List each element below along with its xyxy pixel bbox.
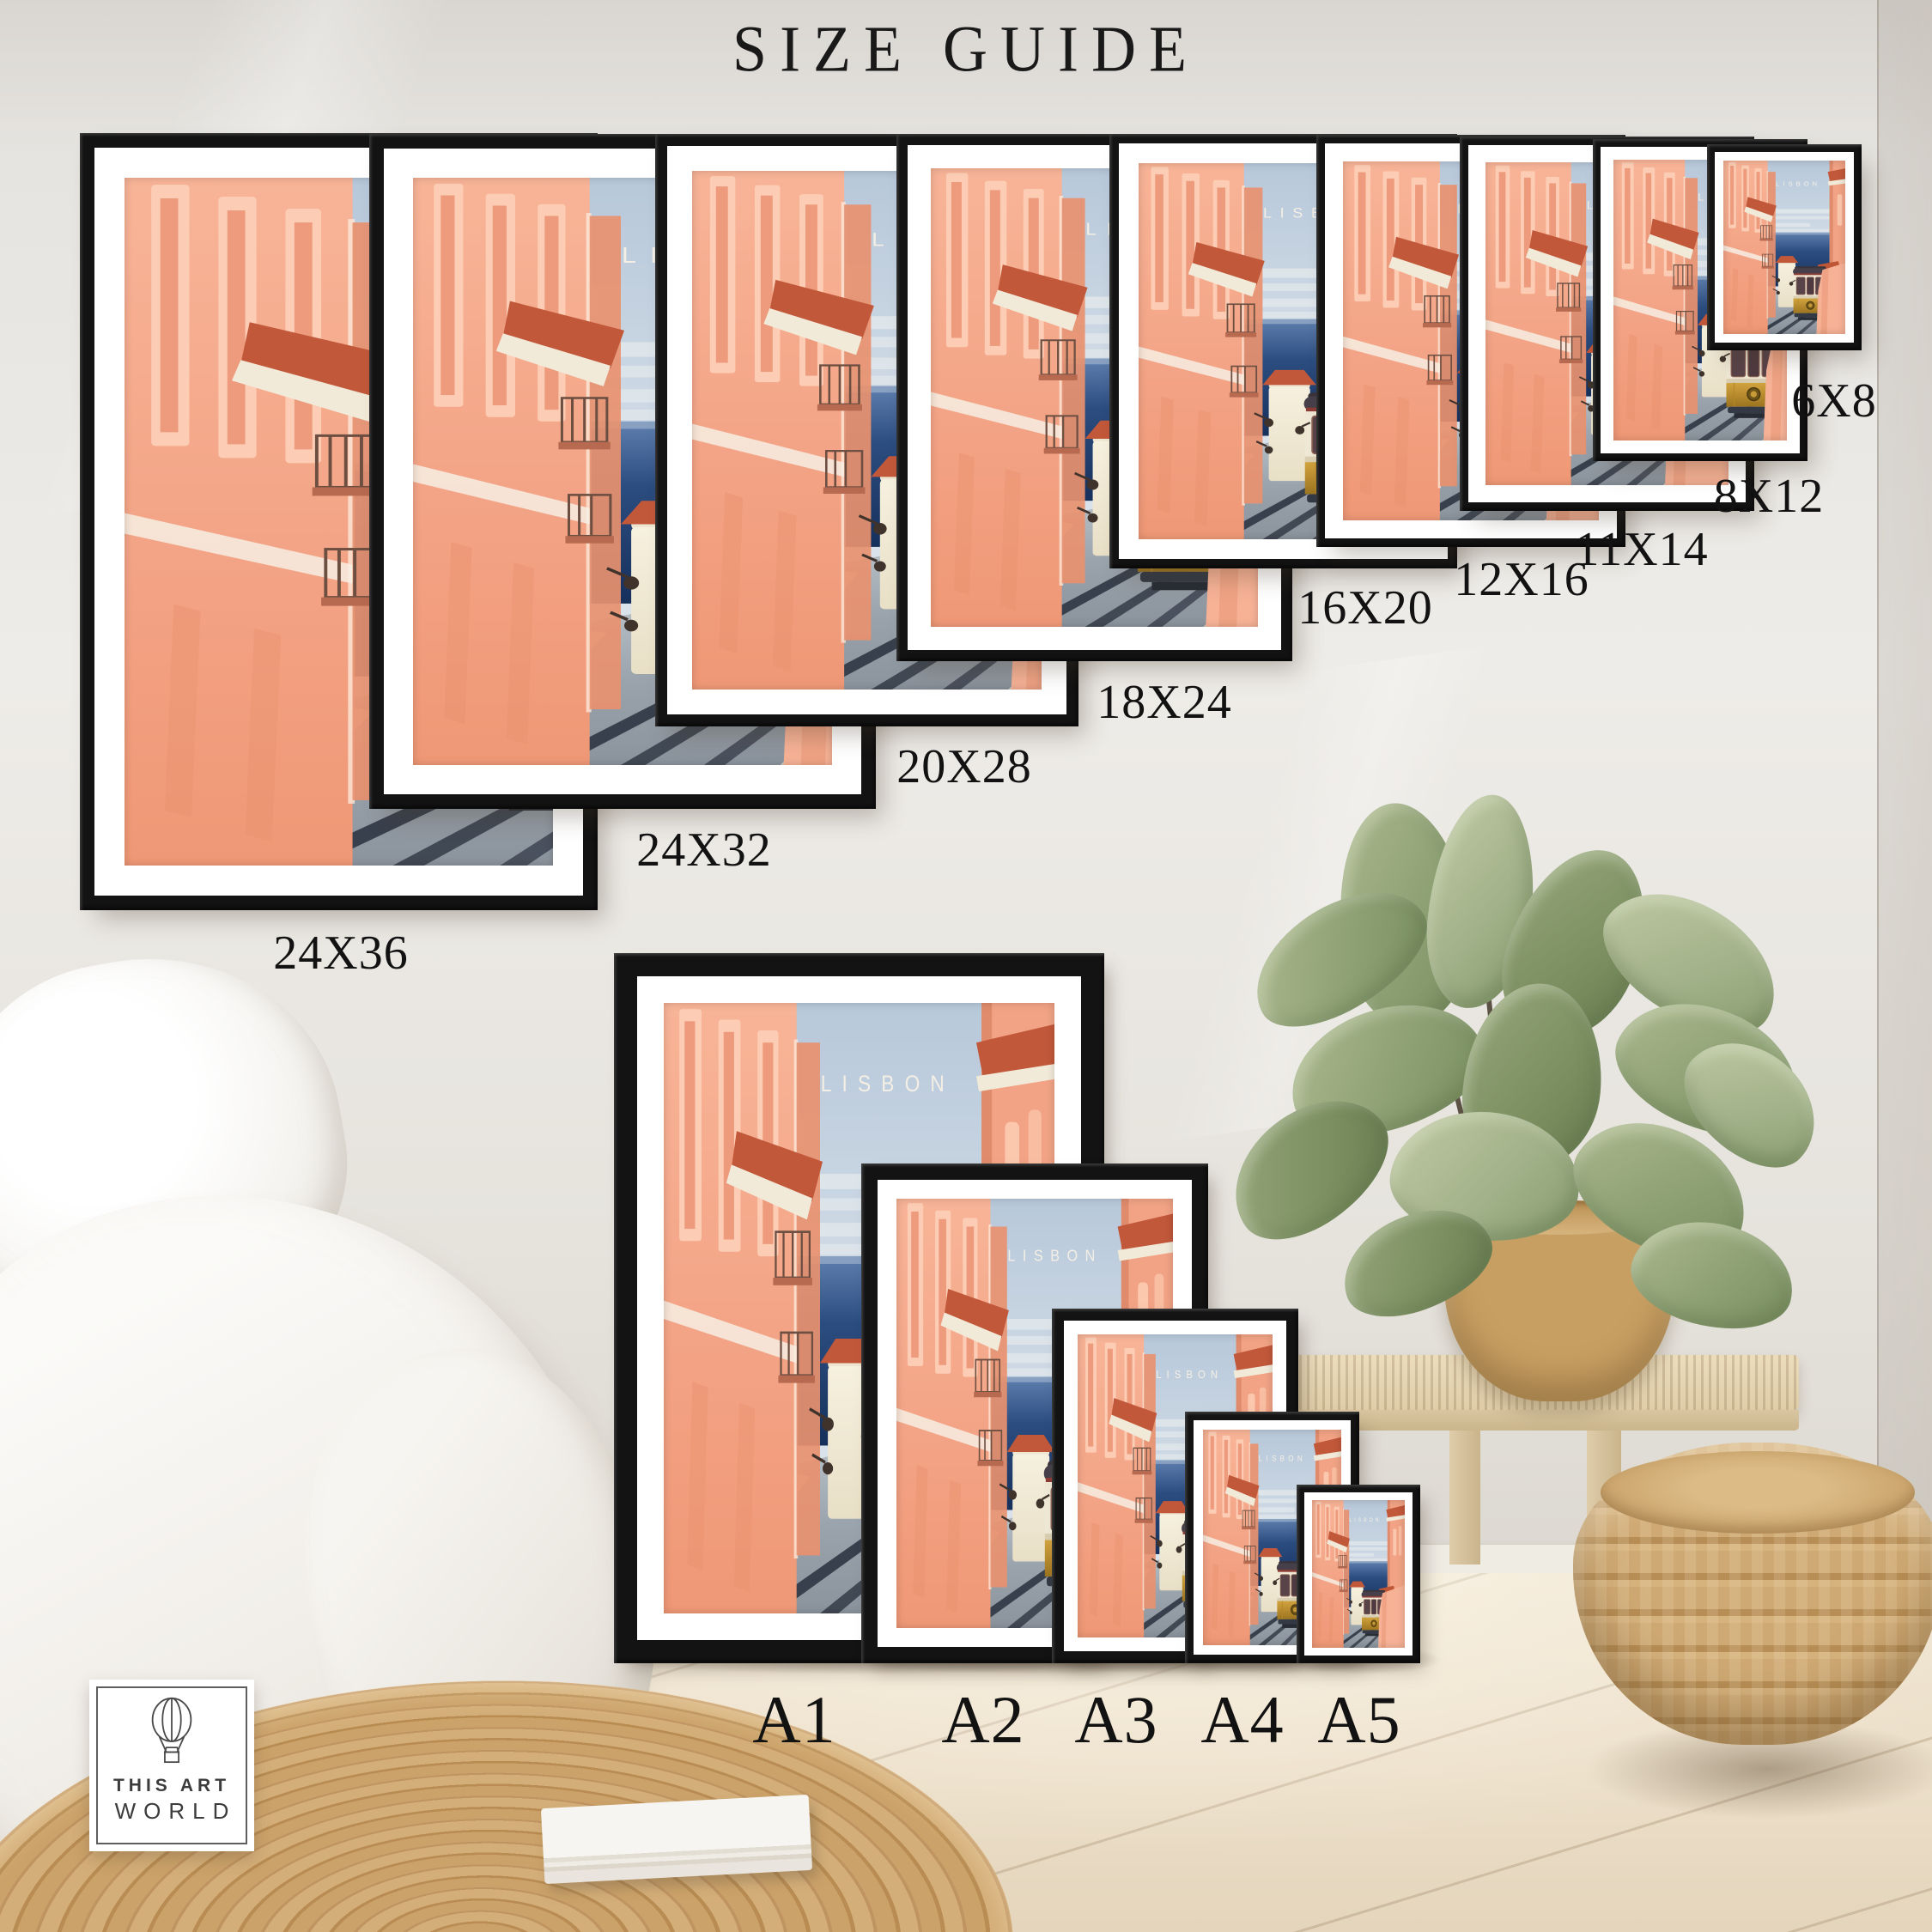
wall-corner-line (1877, 0, 1932, 1589)
size-label-6x8: 6X8 (1791, 374, 1876, 428)
size-label-a3: A3 (1074, 1681, 1157, 1759)
size-label-a2: A2 (941, 1681, 1024, 1759)
brand-logo-border: THIS ART WORLD (96, 1686, 247, 1844)
size-label-11x14: 11X14 (1575, 522, 1708, 577)
brand-logo: THIS ART WORLD (89, 1680, 254, 1851)
size-label-16x20: 16X20 (1297, 580, 1432, 635)
bench-leg (1449, 1431, 1480, 1564)
floor-frame-a5 (1297, 1485, 1420, 1663)
size-label-a1: A1 (752, 1681, 835, 1759)
size-label-8x12: 8X12 (1714, 469, 1824, 524)
bench-edge (1284, 1410, 1799, 1431)
size-label-20x28: 20X28 (896, 739, 1031, 794)
size-label-a5: A5 (1317, 1681, 1400, 1759)
jute-pouf-top (1601, 1451, 1915, 1534)
size-guide-image: SIZE GUIDE 24X3624X3220X2818X2416X2012X1… (0, 0, 1932, 1932)
wall-frame-6x8 (1707, 144, 1862, 350)
page-title: SIZE GUIDE (0, 12, 1932, 88)
size-label-18x24: 18X24 (1097, 675, 1231, 730)
size-label-a4: A4 (1200, 1681, 1284, 1759)
logo-text-line1: THIS ART (113, 1776, 230, 1796)
size-label-12x16: 12X16 (1454, 552, 1589, 607)
size-label-24x36: 24X36 (273, 926, 408, 981)
hot-air-balloon-icon (144, 1697, 199, 1771)
logo-text-line2: WORLD (115, 1798, 237, 1825)
poster-artwork (1312, 1500, 1405, 1648)
size-label-24x32: 24X32 (636, 823, 771, 878)
frame-mat (1715, 152, 1854, 343)
frame-mat (1304, 1492, 1413, 1656)
poster-artwork (1723, 161, 1845, 334)
book (541, 1795, 812, 1884)
